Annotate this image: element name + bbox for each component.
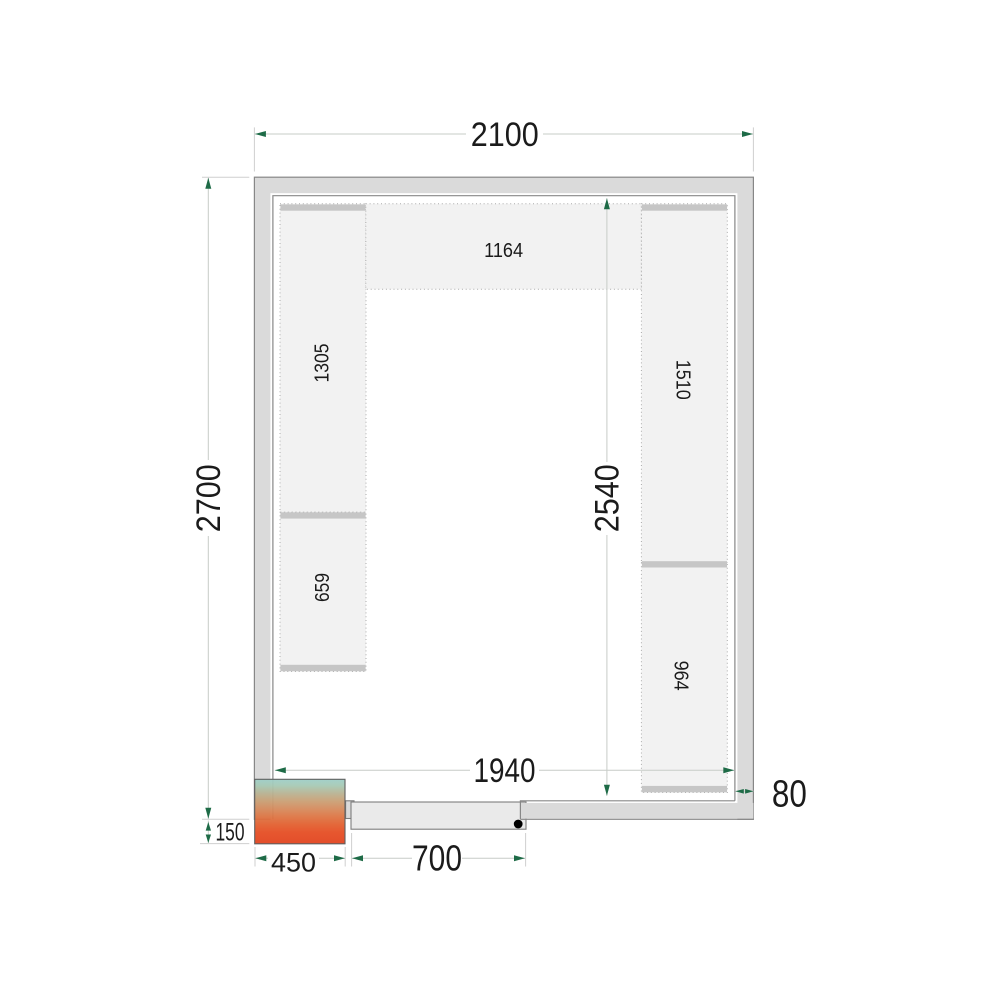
svg-text:150: 150 [216,819,245,847]
svg-text:2700: 2700 [190,464,228,532]
svg-text:80: 80 [772,773,807,815]
svg-text:659: 659 [312,573,334,602]
svg-text:964: 964 [670,661,692,691]
svg-text:2100: 2100 [471,116,539,154]
svg-text:1164: 1164 [484,240,523,262]
svg-text:2540: 2540 [589,464,627,532]
svg-text:450: 450 [271,848,316,878]
svg-text:700: 700 [412,837,462,878]
svg-text:1305: 1305 [311,344,333,383]
svg-text:1510: 1510 [672,360,694,400]
svg-text:1940: 1940 [474,752,536,790]
